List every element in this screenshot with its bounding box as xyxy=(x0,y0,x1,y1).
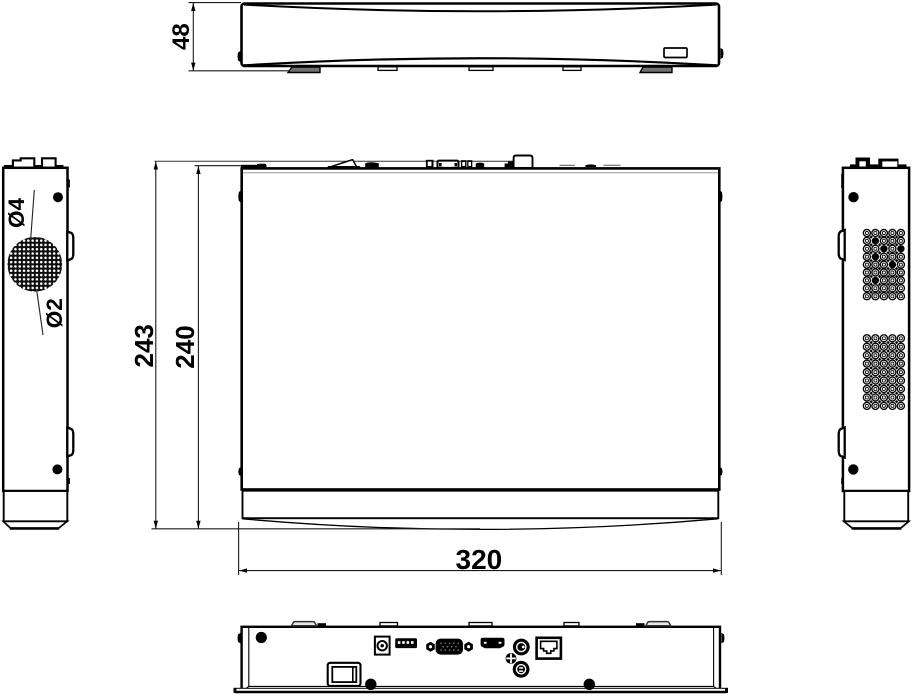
svg-text:240: 240 xyxy=(170,325,200,368)
svg-text:48: 48 xyxy=(168,23,195,50)
svg-text:Ø4: Ø4 xyxy=(4,198,29,229)
svg-text:Ø2: Ø2 xyxy=(42,298,67,328)
svg-text:320: 320 xyxy=(456,544,503,575)
svg-text:243: 243 xyxy=(129,324,159,367)
